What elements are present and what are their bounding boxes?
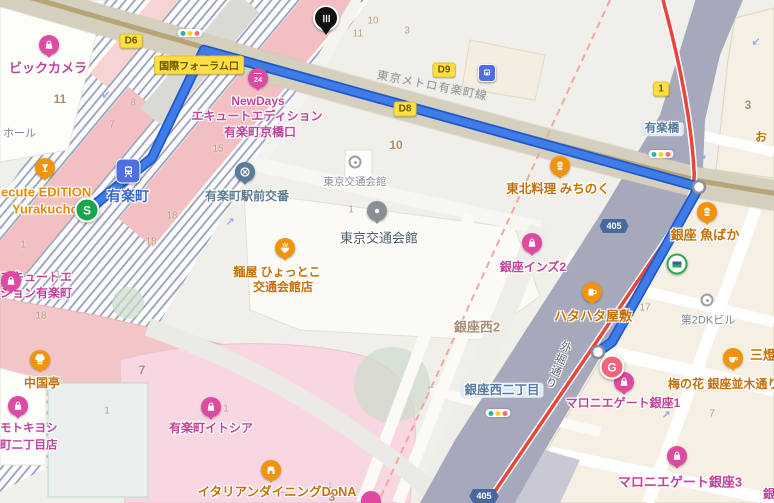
izakaya-pin-hatahata[interactable] — [582, 282, 602, 302]
poi-label-marronnier3[interactable]: マロニエゲート銀座3 — [618, 476, 742, 489]
building-pin-kotsu-kaikan[interactable] — [367, 201, 387, 221]
block-number: 1 — [348, 205, 354, 216]
block-number: 7 — [109, 120, 115, 131]
block-number: 10 — [389, 138, 402, 152]
poi-label-marronnier1[interactable]: マロニエゲート銀座1 — [566, 397, 681, 409]
one-way-arrow-icon: ↗ — [698, 61, 707, 74]
poi-label-newdays-1[interactable]: NewDays — [231, 95, 284, 107]
teacup-icon — [727, 352, 739, 364]
block-number: 1 — [223, 404, 229, 415]
block-number: 3 — [745, 98, 752, 112]
map-canvas[interactable]: ビックカメラ ホール ecute EDITION Yurakucho 有楽町 N… — [0, 0, 774, 503]
shopping-bag-icon — [5, 275, 17, 287]
police-box-pin-koban[interactable] — [235, 162, 255, 182]
route-shield-405: 405 — [469, 489, 498, 503]
building-label-dai2dk: 第2DKビル — [681, 316, 735, 327]
shopping-bag-icon — [43, 39, 55, 51]
one-way-arrow-icon: ← — [279, 485, 290, 497]
shopping-pin-marronnier3[interactable] — [667, 446, 687, 466]
route-destination-marker[interactable]: G — [600, 355, 625, 380]
exit-badge-d6[interactable]: D6 — [120, 34, 143, 49]
block-number: 8 — [130, 98, 136, 109]
block-number: 1 — [104, 406, 110, 417]
poi-label-hyottoko-2[interactable]: 交通会館店 — [253, 281, 313, 293]
restaurant-pin-chugokutei[interactable] — [30, 350, 50, 370]
block-number: 11 — [54, 92, 67, 106]
traffic-light-icon — [649, 150, 674, 158]
route-endpoint[interactable] — [592, 346, 604, 358]
exit-badge-kokusai-forum[interactable]: 国際フォーラム口 — [154, 56, 244, 75]
block-number: 7 — [139, 363, 146, 377]
one-way-arrow-icon: ↑ — [623, 194, 629, 206]
shopping-bag-icon — [12, 400, 24, 412]
storefront-icon — [265, 464, 277, 476]
convenience-pin-newdays[interactable]: 24 — [248, 68, 268, 88]
shopping-bag-icon — [526, 237, 538, 249]
crossing-label-ginza-nishi-2chome: 銀座西二丁目 — [460, 383, 543, 398]
minor-poi-dot[interactable] — [701, 294, 714, 307]
poi-label-ecute-2[interactable]: Yurakucho — [12, 203, 78, 216]
district-label-ginza-nishi2: 銀座西2 — [454, 321, 500, 334]
block-number: 17 — [639, 303, 650, 314]
block-number: 11 — [353, 29, 363, 40]
ramen-icon — [279, 242, 291, 254]
shopping-bag-icon — [671, 450, 683, 462]
route-start-marker[interactable]: S — [75, 198, 100, 223]
dot-icon — [371, 205, 383, 217]
one-way-arrow-icon: ↗ — [661, 409, 670, 422]
poi-label-hatahata[interactable]: ハタハタ屋敷 — [554, 310, 632, 323]
koban-icon — [239, 166, 251, 178]
station-label-yurakucho[interactable]: 有楽町 — [107, 189, 149, 203]
poi-label-santo-partial[interactable]: 三燈 — [750, 349, 774, 362]
route-shield-405: 405 — [599, 219, 628, 233]
jr-station-icon[interactable] — [313, 5, 339, 31]
mug-icon — [586, 286, 598, 298]
restaurant-pin-dona[interactable] — [261, 460, 281, 480]
exit-badge-d8[interactable]: D8 — [394, 102, 417, 117]
poi-label-newdays-3[interactable]: 有楽町京橋口 — [224, 126, 296, 138]
bowl-icon — [554, 160, 566, 172]
exit-badge-d9[interactable]: D9 — [433, 63, 456, 78]
building-label-kotsu-kaikan-small: 東京交通会館 — [324, 177, 387, 188]
block-number: 1 — [55, 270, 61, 281]
minor-poi-dot[interactable] — [349, 156, 362, 169]
one-way-arrow-icon: ↙ — [751, 36, 760, 49]
block-number: 18 — [145, 237, 156, 248]
poi-label-newdays-2[interactable]: エキュートエディション — [191, 110, 322, 122]
block-number: 18 — [35, 311, 46, 322]
poi-label-kotsu-kaikan[interactable]: 東京交通会館 — [340, 232, 418, 245]
poi-label-hyottoko-1[interactable]: 麺屋 ひょっとこ — [233, 266, 320, 278]
trees — [112, 287, 144, 319]
poi-label-hall: ホール — [3, 129, 36, 140]
cocktail-icon — [39, 162, 51, 174]
poi-label-o-partial[interactable]: お — [755, 131, 767, 143]
exit-badge-1[interactable]: 1 — [653, 82, 669, 97]
block-number: 1 — [20, 240, 26, 251]
chef-hat-icon — [34, 354, 46, 366]
poi-label-michinoku[interactable]: 東北料理 みちのく — [506, 183, 609, 196]
poi-label-gin-partial[interactable]: 銀座 — [763, 488, 774, 500]
one-way-arrow-icon: ↗ — [225, 216, 234, 229]
shopping-bag-icon — [205, 401, 217, 413]
poi-label-sakanabaka[interactable]: 銀座 魚ばか — [671, 229, 740, 242]
traffic-light-icon — [178, 29, 203, 37]
block-number: 10 — [367, 16, 378, 27]
shopping-pin-matsumotokiyoshi[interactable] — [8, 396, 28, 416]
poi-label-chugokutei[interactable]: 中国亭 — [24, 377, 60, 389]
one-way-arrow-icon: ↙ — [101, 89, 110, 102]
restaurant-pin-michinoku[interactable] — [550, 156, 570, 176]
poi-label-umenohana[interactable]: 梅の花 銀座並木通り — [668, 378, 774, 390]
one-way-arrow-icon: ← — [426, 380, 437, 392]
traffic-light-icon — [486, 409, 511, 417]
one-way-arrow-icon: ↘ — [697, 150, 706, 163]
one-way-arrow-icon: ↓ — [327, 479, 333, 491]
poi-label-matsumotokiyoshi-2[interactable]: 町二丁目店 — [0, 440, 58, 452]
block-number: 3 — [404, 26, 410, 37]
railway-icon — [321, 13, 332, 24]
bus-icon — [482, 68, 492, 78]
block-number: 15 — [212, 144, 223, 155]
route-waypoint[interactable] — [693, 181, 705, 193]
block-number: 18 — [166, 211, 177, 222]
poi-label-ginza-inz2[interactable]: 銀座インズ2 — [500, 261, 566, 273]
train-icon — [121, 164, 135, 178]
bowl-icon — [701, 206, 713, 218]
shopping-pin-ecute-edition[interactable] — [1, 271, 21, 291]
shopping-pin-bic-camera[interactable] — [39, 35, 59, 55]
restaurant-pin-hyottoko[interactable] — [275, 238, 295, 258]
24h-icon: 24 — [254, 73, 262, 84]
familymart-pin[interactable] — [667, 254, 688, 275]
block-number: 7 — [709, 409, 715, 420]
poi-label-ecute-1[interactable]: ecute EDITION — [1, 186, 91, 199]
shopping-pin-itocia[interactable] — [201, 397, 221, 417]
shopping-bag-icon — [618, 376, 630, 388]
poi-label-koban[interactable]: 有楽町駅前交番 — [205, 190, 289, 202]
poi-label-itocia[interactable]: 有楽町イトシア — [169, 422, 253, 434]
metro-station-icon[interactable] — [116, 159, 141, 184]
shopping-pin-ginza-inz2[interactable] — [522, 233, 542, 253]
block-number: 3 — [329, 490, 336, 503]
poi-label-matsumotokiyoshi-1[interactable]: モトキヨシ — [0, 423, 58, 435]
block — [48, 383, 148, 497]
restaurant-pin-umenohana[interactable] — [723, 348, 743, 368]
poi-label-bic-camera[interactable]: ビックカメラ — [9, 62, 87, 75]
bar-pin[interactable] — [35, 158, 55, 178]
restaurant-pin-sakanabaka[interactable] — [697, 202, 717, 222]
bridge-label-yurakubashi: 有楽橋 — [641, 122, 684, 136]
bus-stop-icon[interactable] — [478, 64, 496, 82]
